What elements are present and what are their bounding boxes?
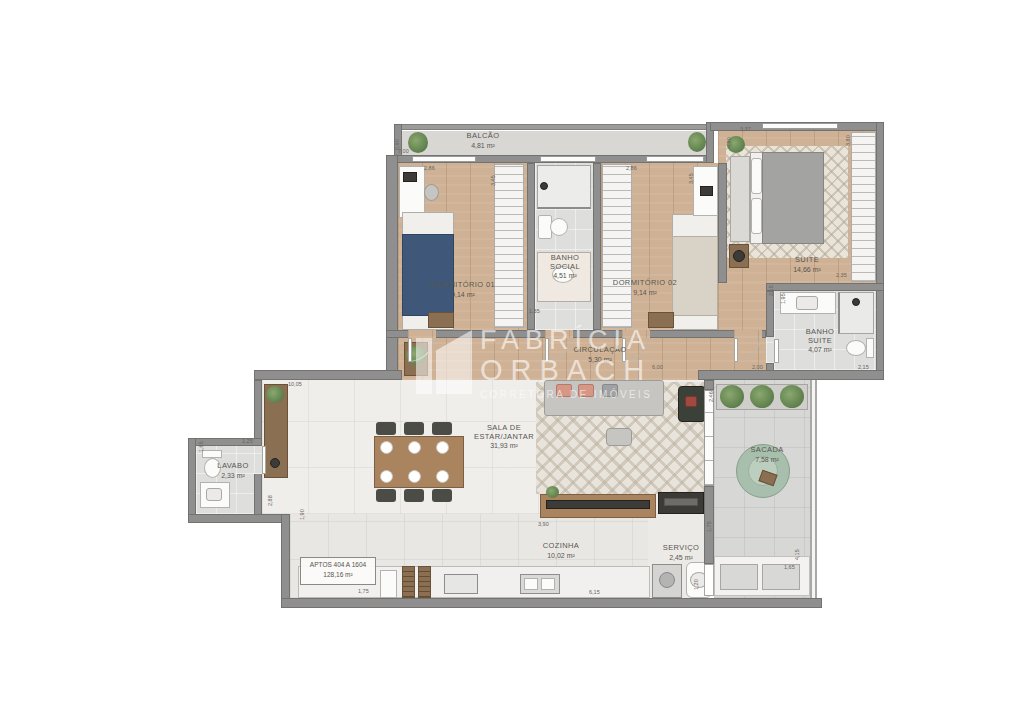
label-balcao: BALCÃO 4,81 m² [467, 132, 500, 150]
ottoman [606, 428, 632, 446]
plate [408, 470, 421, 483]
dim-label: 1,25 [242, 438, 253, 444]
door-leaf-suite [734, 338, 738, 362]
door-leaf-banho-suite [774, 339, 779, 363]
room-name: DORMITÓRIO 01 [431, 281, 495, 290]
room-name: DORMITÓRIO 02 [613, 279, 677, 288]
nightstand-dorm2 [648, 312, 674, 328]
dim-label: 2,35 [836, 272, 847, 278]
sacada-glass-railing [810, 380, 817, 598]
nightstand-dorm1 [428, 312, 454, 328]
plant-balcao-right [688, 132, 706, 152]
balcao-railing [400, 124, 710, 130]
plate [436, 470, 449, 483]
stove [444, 574, 478, 594]
wall [704, 380, 714, 390]
unit-number: APTOS 404 A 1604 [304, 560, 372, 570]
room-area: 4,81 m² [467, 142, 500, 150]
door-gap-dorm2 [622, 330, 650, 338]
wall [593, 163, 601, 330]
dining-chair [432, 489, 452, 502]
room-area: 2,45 m² [663, 554, 699, 562]
window-suite [762, 123, 838, 129]
label-sacada: SACADA 7,58 m² [750, 446, 783, 464]
dim-label: 2,86 [626, 165, 637, 171]
room-area: 7,58 m² [750, 456, 783, 464]
dim-label: 2,15 [858, 364, 869, 370]
basin-banho-suite [796, 296, 818, 310]
pillow-suite-1 [751, 158, 762, 194]
dim-label: 1,90 [299, 509, 305, 520]
plate [380, 470, 393, 483]
door-leaf-dorm1 [408, 338, 412, 362]
wall [188, 438, 196, 522]
window-dorm1 [412, 156, 476, 162]
wall [527, 163, 535, 330]
unit-info-box: APTOS 404 A 1604 128,16 m² [300, 557, 376, 585]
label-banho-suite: BANHO SUITE 4,07 m² [806, 328, 835, 354]
dim-label: 1,65 [784, 564, 795, 570]
floor-plan: BALCÃO 4,81 m² DORMITÓRIO 01 9,14 m² BAN… [0, 0, 1024, 723]
room-name: SALA DE ESTAR/JANTAR [474, 424, 534, 441]
stool-2 [418, 566, 431, 598]
dim-label: 1,35 [529, 308, 540, 314]
wardrobe-dorm2 [602, 164, 632, 328]
sink-basin-2 [541, 578, 555, 590]
label-dormitorio2: DORMITÓRIO 02 9,14 m² [613, 279, 677, 297]
duvet-dorm2 [672, 236, 718, 316]
room-area: 4,07 m² [806, 346, 835, 354]
dim-label: 2,88 [267, 495, 273, 506]
toilet-bowl-banho-social [550, 218, 568, 236]
toilet-banho-suite-tank [866, 338, 874, 358]
dim-label: 3,45 [490, 175, 496, 186]
wardrobe-dorm1 [494, 164, 524, 328]
fridge [380, 570, 397, 598]
toilet-lavabo-tank [202, 450, 222, 458]
wall [876, 122, 884, 380]
wardrobe-suite [851, 132, 876, 282]
dim-label: 2,86 [424, 165, 435, 171]
wall [188, 514, 290, 523]
dim-label: 1,20 [693, 579, 699, 590]
dim-label: 1,65 [198, 441, 204, 452]
dim-label: 3,80 [845, 135, 851, 146]
unit-area: 128,16 m² [304, 570, 372, 580]
door-gap-dorm1 [408, 330, 436, 338]
floorplan-page: { "watermark": { "line1": "FABRÍCIA", "l… [0, 0, 1024, 723]
window-dorm2 [646, 156, 704, 162]
plant-sacada-2 [750, 385, 774, 408]
room-area: 4,51 m² [550, 272, 580, 280]
window-banho-social [540, 156, 596, 162]
dim-label: 1,95 [780, 293, 786, 304]
laptop-dorm2 [700, 186, 713, 196]
wall [254, 370, 402, 380]
plant-sideboard [266, 386, 284, 403]
toilet-banho-suite-bowl [846, 340, 866, 356]
dim-label: 7,00 [398, 148, 409, 154]
dining-chair [376, 422, 396, 435]
dim-label: 1,75 [706, 521, 712, 532]
desk-chair-dorm1 [424, 184, 439, 201]
plate [408, 441, 421, 454]
room-area: 10,02 m² [543, 552, 580, 560]
wall [718, 163, 727, 283]
label-suite: SUITE 14,66 m² [793, 256, 821, 274]
room-name: BANHO SUITE [806, 328, 835, 345]
duvet-dorm1 [402, 234, 454, 316]
dim-label: 3,45 [688, 173, 694, 184]
room-name: CIRCULAÇÃO [573, 346, 626, 355]
door-gap-suite [734, 330, 762, 338]
cabinet-dark-inset [664, 498, 698, 506]
wall [281, 598, 822, 608]
dining-chair [376, 489, 396, 502]
door-leaf-banho-social [545, 338, 549, 362]
duvet-suite [762, 152, 824, 244]
label-cozinha: COZINHA 10,02 m² [543, 542, 580, 560]
decor-sideboard [270, 458, 280, 468]
dim-label: 4,80 [726, 137, 732, 148]
plant-tv [546, 486, 559, 498]
label-sala: SALA DE ESTAR/JANTAR 31,93 m² [474, 424, 534, 450]
laptop-dorm1 [403, 172, 417, 182]
wall [386, 155, 398, 378]
wall [698, 370, 884, 380]
ledge-unit-1 [720, 564, 758, 590]
washer-door [659, 572, 675, 588]
dining-chair [404, 422, 424, 435]
label-dormitorio1: DORMITÓRIO 01 9,14 m² [431, 281, 495, 299]
plate [380, 441, 393, 454]
dim-label: 2,15 [768, 285, 774, 296]
stool-1 [402, 566, 415, 598]
plant-balcao-left [408, 132, 428, 153]
sofa-pillow-3 [602, 384, 618, 397]
wall [281, 514, 290, 608]
label-lavabo: LAVABO 2,33 m² [217, 462, 248, 480]
shower-head-suite-icon [852, 298, 860, 306]
room-area: 31,93 m² [474, 442, 534, 450]
room-name: BANHO SOCIAL [550, 254, 580, 271]
label-banho-social: BANHO SOCIAL 4,51 m² [550, 254, 580, 280]
dim-label: 2,46 [708, 391, 714, 402]
sofa-pillow-2 [578, 384, 594, 397]
room-area: 9,14 m² [431, 291, 495, 299]
sofa-pillow-1 [556, 384, 572, 397]
room-name: SUITE [793, 256, 821, 265]
label-servico: SERVIÇO 2,45 m² [663, 544, 699, 562]
dim-label: 10,05 [288, 381, 302, 387]
dim-label: 2,00 [752, 364, 763, 370]
dim-label: 3,90 [538, 521, 549, 527]
door-gap-banho-social [545, 330, 573, 338]
headboard-suite [730, 156, 750, 242]
room-name: SACADA [750, 446, 783, 455]
room-name: LAVABO [217, 462, 248, 471]
sink-basin-1 [524, 578, 538, 590]
dining-chair [404, 489, 424, 502]
door-leaf-lavabo [262, 446, 266, 474]
shower-head-icon [540, 182, 548, 190]
dim-label: 4,15 [794, 549, 800, 560]
wall [386, 330, 766, 338]
dim-label: 6,00 [652, 364, 663, 370]
room-area: 2,33 m² [217, 472, 248, 480]
plant-sacada-1 [720, 385, 744, 408]
basin-lavabo [206, 488, 222, 501]
dim-label: 3,37 [740, 126, 751, 132]
room-name: COZINHA [543, 542, 580, 551]
door-servico-sacada [704, 564, 714, 596]
room-area: 5,30 m² [573, 356, 626, 364]
room-name: SERVIÇO [663, 544, 699, 553]
wall [766, 283, 884, 291]
armchair-pillow [685, 396, 697, 407]
dim-label: 1,75 [358, 588, 369, 594]
dim-label: 6,15 [589, 589, 600, 595]
room-area: 14,66 m² [793, 266, 821, 274]
side-table-suite [733, 250, 745, 262]
door-gap-lavabo [254, 446, 262, 474]
label-circulacao: CIRCULAÇÃO 5,30 m² [573, 346, 626, 364]
tv-panel [546, 500, 650, 509]
room-name: BALCÃO [467, 132, 500, 141]
plate [436, 441, 449, 454]
balcao-floor [402, 131, 706, 157]
door-gap-banho-suite [766, 337, 774, 363]
dining-chair [432, 422, 452, 435]
room-area: 9,14 m² [613, 289, 677, 297]
wall [766, 291, 774, 337]
plant-sacada-3 [780, 385, 804, 408]
glass-door-sacada [704, 390, 714, 486]
pillow-suite-2 [751, 198, 762, 234]
